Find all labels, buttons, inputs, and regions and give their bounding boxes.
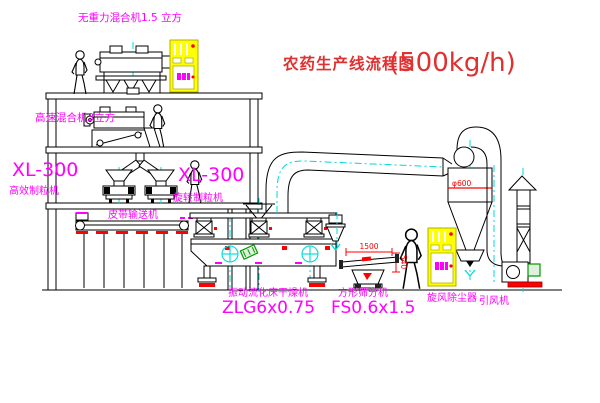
label-belt-conveyor: 皮带输送机 [108, 208, 158, 221]
process-flow-diagram: 无重力混合机1.5 立方 农药生产线流程图 (500kg/h) 高速混合机3立方… [0, 0, 600, 403]
fan-motor-icon [528, 264, 540, 276]
label-granulator-right: 旋转制粒机 [173, 191, 223, 204]
fluidized-bed-dryer [190, 198, 336, 292]
label-zero-gravity-mixer: 无重力混合机1.5 立方 [78, 11, 182, 24]
label-cyclone: 旋风除尘器 [427, 291, 477, 304]
indicator-light-icon [191, 44, 195, 48]
exhaust-duct [266, 152, 452, 213]
label-dryer-model: ZLG6x0.75 [222, 298, 315, 318]
vibration-mount [249, 218, 272, 237]
dimension-phi600: φ600 [452, 179, 471, 188]
label-xl300-left: XL-300 [12, 159, 78, 181]
control-cabinet-ground [428, 228, 456, 286]
induced-draft-fan [502, 262, 542, 287]
indicator-light-icon [449, 232, 453, 236]
vibration-mount [304, 218, 327, 237]
diagram-title-capacity: (500kg/h) [389, 48, 516, 78]
dryer-foot [198, 266, 216, 287]
dryer-foot [308, 266, 326, 287]
cyclone-separator [448, 127, 522, 282]
diagram-canvas: 无重力混合机1.5 立方 农药生产线流程图 (500kg/h) 高速混合机3立方… [0, 0, 600, 403]
vibration-mount [194, 218, 217, 237]
label-sieve-model: FS0.6x1.5 [331, 298, 415, 318]
worker-figure-roof [72, 51, 87, 94]
granulator-left [103, 167, 135, 206]
label-high-speed-mixer: 高速混合机3立方 [35, 111, 115, 124]
label-granulator-left: 高效制粒机 [9, 184, 59, 197]
label-xl300-right: XL-300 [178, 164, 244, 186]
belt-conveyor [76, 212, 194, 288]
control-cabinet-top [170, 40, 198, 92]
dimension-540: 540 [399, 255, 408, 270]
dimension-1500: 1500 [359, 242, 378, 251]
label-fan: 引风机 [479, 294, 509, 307]
